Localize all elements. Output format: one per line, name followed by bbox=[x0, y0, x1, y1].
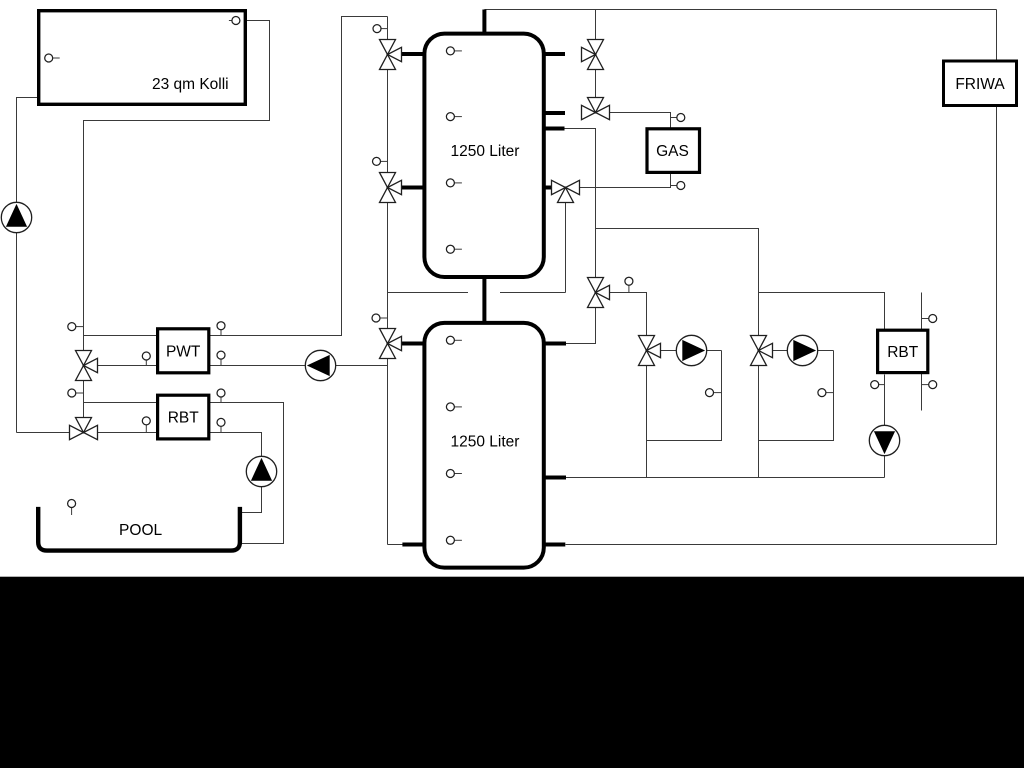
svg-text:RBT: RBT bbox=[168, 410, 200, 427]
svg-text:1250 Liter: 1250 Liter bbox=[451, 143, 520, 160]
svg-text:1250 Liter: 1250 Liter bbox=[451, 434, 520, 451]
svg-text:FRIWA: FRIWA bbox=[955, 76, 1005, 93]
svg-text:POOL: POOL bbox=[119, 522, 162, 539]
svg-text:RBT: RBT bbox=[887, 344, 919, 361]
svg-text:PWT: PWT bbox=[166, 344, 201, 361]
svg-text:23 qm Kolli: 23 qm Kolli bbox=[152, 76, 229, 93]
svg-text:GAS: GAS bbox=[656, 143, 689, 160]
